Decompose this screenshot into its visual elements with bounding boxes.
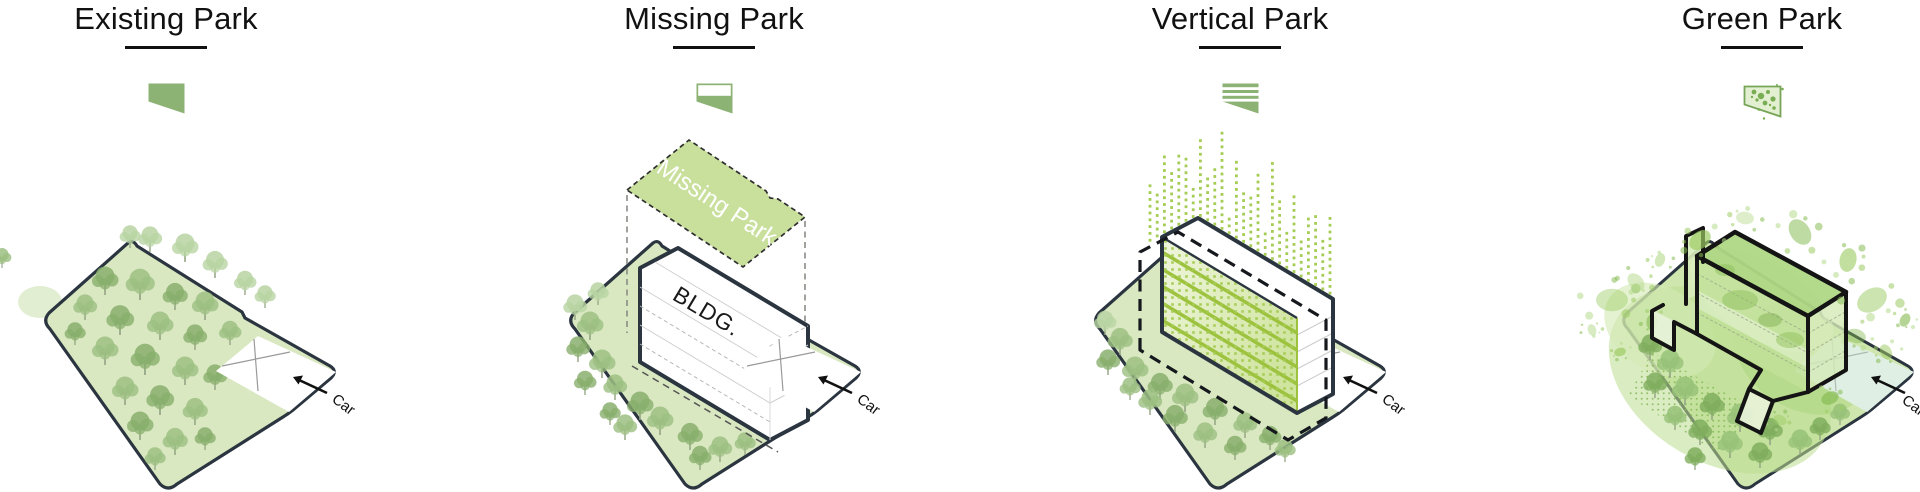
green-dot [1293, 223, 1296, 226]
green-dot [1321, 247, 1324, 250]
green-dot [1149, 212, 1152, 215]
green-dot [1329, 251, 1332, 254]
car-label: Car [854, 391, 884, 419]
splatter-dot [1736, 210, 1739, 213]
green-dot [1307, 231, 1310, 234]
splatter-dot [1860, 345, 1866, 351]
green-dot [1285, 245, 1288, 248]
tree [255, 285, 276, 308]
green-dot [1199, 153, 1202, 156]
green-dot [1163, 190, 1166, 193]
green-dot [1192, 208, 1195, 211]
green-dot [1163, 217, 1166, 220]
green-dot [1271, 196, 1274, 199]
green-dot [1149, 191, 1152, 194]
green-dot [1307, 279, 1310, 282]
green-dot [1257, 221, 1260, 224]
splatter-blob [1735, 211, 1755, 226]
splatter-dot [1645, 309, 1649, 313]
green-dot [1213, 209, 1216, 212]
green-dot [1314, 283, 1317, 286]
green-dot [1199, 139, 1202, 142]
splatter-dot [1783, 410, 1787, 414]
green-dot [1206, 218, 1209, 221]
splatter-dot [1896, 323, 1900, 327]
green-dot [1206, 178, 1209, 181]
splatter-dot [1639, 322, 1643, 326]
green-dot [1221, 193, 1224, 196]
splatter-dot [1803, 216, 1807, 220]
green-dot [1221, 207, 1224, 210]
green-dot [1293, 270, 1296, 273]
green-dot [1221, 152, 1224, 155]
green-dot [1257, 242, 1260, 245]
green-dot [1242, 226, 1245, 229]
green-dot [1177, 162, 1180, 165]
green-dot [1206, 205, 1209, 208]
green-dot [1221, 220, 1224, 223]
green-dot [1213, 223, 1216, 226]
green-dot [1249, 231, 1252, 234]
green-dot [1264, 233, 1267, 236]
green-dot [1300, 275, 1303, 278]
green-dot [1149, 184, 1152, 187]
splatter-dot [1649, 285, 1655, 291]
green-dot [1199, 194, 1202, 197]
green-dot [1249, 237, 1252, 240]
green-dot [1321, 267, 1324, 270]
green-dot [1163, 203, 1166, 206]
green-dot [1163, 224, 1166, 227]
splatter-dot [1625, 357, 1627, 359]
green-dot [1156, 228, 1159, 231]
green-dot [1163, 169, 1166, 172]
green-dot [1271, 244, 1274, 247]
green-dot [1163, 176, 1166, 179]
splatter-dot [1886, 308, 1891, 313]
splatter-dot [1875, 354, 1878, 357]
splatter-dot [1760, 217, 1765, 222]
green-dot [1199, 214, 1202, 217]
green-dot [1199, 160, 1202, 163]
green-dot [1271, 176, 1274, 179]
splatter-dot [1752, 228, 1756, 232]
green-dot [1163, 183, 1166, 186]
green-dot [1185, 158, 1188, 161]
splatter-dot [1862, 255, 1866, 259]
green-dot [1177, 168, 1180, 171]
green-dot [1156, 194, 1159, 197]
green-dot [1264, 246, 1267, 249]
green-dot [1257, 187, 1260, 190]
green-dot [1170, 193, 1173, 196]
green-dot [1213, 182, 1216, 185]
green-dot [1329, 258, 1332, 261]
green-dot [1300, 247, 1303, 250]
green-dot [1221, 227, 1224, 230]
concept-diagram-sheet: Existing Park Missing Park Vertical Park… [0, 0, 1920, 492]
green-dot [1199, 207, 1202, 210]
green-dot [1293, 216, 1296, 219]
splatter-dot [1579, 331, 1582, 334]
green-dot [1199, 187, 1202, 190]
green-dot [1177, 189, 1180, 192]
tree [172, 234, 199, 263]
green-dot [1177, 182, 1180, 185]
green-dot [1293, 257, 1296, 260]
splatter-dot [1888, 283, 1894, 289]
green-dot [1149, 205, 1152, 208]
splatter-dot [1598, 332, 1600, 334]
green-dot [1249, 224, 1252, 227]
green-dot [1221, 179, 1224, 182]
green-dot [1329, 217, 1332, 220]
green-dot [1242, 240, 1245, 243]
green-dot [1278, 207, 1281, 210]
green-dot [1271, 169, 1274, 172]
green-dot [1314, 215, 1317, 218]
car-label: Car [1379, 391, 1409, 419]
green-dot [1271, 230, 1274, 233]
splatter-dot [1788, 421, 1792, 425]
green-dot [1185, 185, 1188, 188]
green-dot [1192, 215, 1195, 218]
car-label: Car [329, 391, 359, 419]
green-dot [1329, 244, 1332, 247]
green-dot [1221, 132, 1224, 135]
green-dot [1321, 253, 1324, 256]
splatter-dot [1815, 223, 1823, 231]
green-dot [1271, 189, 1274, 192]
splatter-dot [1852, 344, 1855, 347]
existing-park-diagram: Car [0, 225, 358, 488]
green-dot [1300, 268, 1303, 271]
green-dot [1163, 230, 1166, 233]
green-dot [1314, 222, 1317, 225]
splatter-dot [1858, 244, 1865, 251]
green-dot [1278, 221, 1281, 224]
splatter-dot [1904, 308, 1907, 311]
tree [613, 414, 637, 440]
green-dot [1321, 281, 1324, 284]
green-dot [1170, 199, 1173, 202]
green-dot [1192, 188, 1195, 191]
green-dot [1163, 210, 1166, 213]
splatter-dot [1876, 358, 1881, 363]
green-dot [1177, 209, 1180, 212]
splatter-dot [1745, 206, 1750, 211]
splatter-dot [1646, 258, 1650, 262]
vertical-park-diagram: Car [1094, 132, 1408, 488]
green-dot [1206, 198, 1209, 201]
green-dot [1235, 202, 1238, 205]
green-dot [1177, 202, 1180, 205]
green-dot [1329, 278, 1332, 281]
green-dot [1314, 276, 1317, 279]
green-dot [1156, 207, 1159, 210]
car-label: Car [1899, 392, 1920, 420]
green-dot [1271, 223, 1274, 226]
green-dot [1221, 145, 1224, 148]
splatter-dot [1672, 257, 1676, 261]
green-dot [1300, 261, 1303, 264]
green-dot [1228, 231, 1231, 234]
green-dot [1235, 236, 1238, 239]
green-dot [1278, 228, 1281, 231]
splatter-dot [1895, 298, 1905, 308]
green-dot [1242, 199, 1245, 202]
green-dot [1185, 199, 1188, 202]
green-dot [1249, 197, 1252, 200]
green-dot [1213, 175, 1216, 178]
green-dot [1235, 181, 1238, 184]
green-dot [1271, 210, 1274, 213]
splatter-blob [1837, 247, 1858, 274]
green-dot [1149, 218, 1152, 221]
green-dot [1177, 155, 1180, 158]
splatter-dot [1646, 328, 1649, 331]
green-dot [1271, 203, 1274, 206]
green-dot [1199, 180, 1202, 183]
green-dot [1235, 195, 1238, 198]
green-dot [1307, 218, 1310, 221]
splatter-blob [1784, 215, 1816, 249]
splatter-dot [1839, 405, 1844, 410]
green-dot [1177, 175, 1180, 178]
green-dot [1199, 200, 1202, 203]
green-dot [1213, 216, 1216, 219]
green-dot [1213, 168, 1216, 171]
green-dot [1199, 166, 1202, 169]
green-dot [1257, 201, 1260, 204]
green-dot [1163, 156, 1166, 159]
splatter-dot [1838, 390, 1843, 395]
green-dot [1185, 165, 1188, 168]
green-dot [1185, 219, 1188, 222]
green-dot [1213, 195, 1216, 198]
splatter-dot [1610, 349, 1613, 352]
green-dot [1314, 270, 1317, 273]
green-dot [1163, 196, 1166, 199]
splatter-blob [1596, 289, 1628, 311]
green-dot [1314, 236, 1317, 239]
splatter-dot [1731, 223, 1734, 226]
green-dot [1163, 162, 1166, 165]
green-dot [1271, 216, 1274, 219]
green-dot [1185, 171, 1188, 174]
splatter-dot [1699, 253, 1703, 257]
green-dot [1235, 229, 1238, 232]
green-dot [1177, 196, 1180, 199]
green-dot [1185, 178, 1188, 181]
green-dot [1257, 249, 1260, 252]
green-dot [1300, 241, 1303, 244]
splatter-dot [1722, 238, 1727, 243]
splatter-dot [1808, 247, 1815, 254]
green-dot [1249, 244, 1252, 247]
green-dot [1242, 233, 1245, 236]
green-dot [1156, 200, 1159, 203]
green-dot [1221, 200, 1224, 203]
tree [574, 371, 597, 395]
green-dot [1170, 227, 1173, 230]
green-dot [1235, 188, 1238, 191]
splatter-dot [1629, 346, 1631, 348]
green-dot [1293, 209, 1296, 212]
green-dot [1221, 213, 1224, 216]
green-dot [1149, 239, 1152, 242]
green-dot [1307, 238, 1310, 241]
green-dot [1149, 225, 1152, 228]
splatter-dot [1829, 387, 1832, 390]
green-dot [1192, 202, 1195, 205]
green-dot [1228, 218, 1231, 221]
splatter-dot [1577, 292, 1584, 299]
green-dot [1170, 179, 1173, 182]
green-dot [1221, 166, 1224, 169]
missing-park-diagram: BLDG. Missing Park Car [563, 140, 883, 488]
green-dot [1257, 181, 1260, 184]
splatter-dot [1833, 272, 1839, 278]
green-dot [1221, 159, 1224, 162]
green-dot [1278, 200, 1281, 203]
green-dot [1235, 215, 1238, 218]
splatter-dot [1657, 251, 1661, 255]
green-dot [1156, 214, 1159, 217]
splatter-dot [1789, 210, 1797, 218]
green-dot [1264, 253, 1267, 256]
splatter-dot [1669, 266, 1672, 269]
green-dot [1249, 217, 1252, 220]
splatter-dot [1682, 240, 1686, 244]
splatter-dot [1915, 318, 1918, 321]
splatter-dot [1620, 342, 1623, 345]
splatter-dot [1585, 312, 1593, 320]
green-dot [1235, 161, 1238, 164]
splatter-dot [1727, 212, 1732, 217]
green-dot [1264, 239, 1267, 242]
green-dot [1271, 182, 1274, 185]
splatter-dot [1775, 428, 1779, 432]
green-dot [1257, 235, 1260, 238]
green-dot [1242, 213, 1245, 216]
green-dot [1293, 202, 1296, 205]
green-dot [1314, 242, 1317, 245]
splatter-dot [1785, 248, 1791, 254]
green-dot [1192, 195, 1195, 198]
green-park-diagram: Car [1575, 206, 1920, 492]
splatter-dot [1866, 313, 1875, 322]
green-dot [1235, 208, 1238, 211]
green-dot [1257, 174, 1260, 177]
splatter-dot [1622, 309, 1631, 318]
green-dot [1156, 234, 1159, 237]
splatter-dot [1649, 274, 1653, 278]
green-dot [1285, 252, 1288, 255]
green-dot [1293, 229, 1296, 232]
green-dot [1185, 205, 1188, 208]
green-dot [1307, 245, 1310, 248]
splatter-dot [1905, 326, 1907, 328]
green-dot [1149, 198, 1152, 201]
splatter-dot [1660, 310, 1663, 313]
green-dot [1329, 271, 1332, 274]
green-dot [1271, 250, 1274, 253]
splatter-dot [1626, 266, 1630, 270]
splatter-dot [1776, 223, 1781, 228]
green-dot [1329, 292, 1332, 295]
green-dot [1242, 192, 1245, 195]
splatter-dot [1773, 411, 1776, 414]
green-dot [1185, 212, 1188, 215]
green-dot [1329, 265, 1332, 268]
splatter-dot [1825, 410, 1829, 414]
splatter-blob [1586, 323, 1598, 337]
green-dot [1228, 225, 1231, 228]
green-dot [1206, 184, 1209, 187]
splatter-dot [1848, 278, 1855, 285]
green-dot [1257, 228, 1260, 231]
splatter-dot [1813, 395, 1816, 398]
green-dot [1285, 259, 1288, 262]
green-dot [1314, 229, 1317, 232]
green-dot [1257, 194, 1260, 197]
green-dot [1177, 223, 1180, 226]
splatter-dot [1860, 320, 1864, 324]
site-diagrams: Car [0, 0, 1920, 492]
green-dot [1293, 250, 1296, 253]
green-dot [1170, 172, 1173, 175]
splatter-dot [1889, 360, 1892, 363]
green-dot [1271, 257, 1274, 260]
green-dot [1170, 220, 1173, 223]
splatter-dot [1631, 297, 1636, 302]
tree [0, 248, 11, 268]
green-dot [1329, 231, 1332, 234]
green-dot [1329, 224, 1332, 227]
splatter-dot [1900, 347, 1903, 350]
green-dot [1285, 266, 1288, 269]
green-dot [1300, 254, 1303, 257]
green-dot [1314, 263, 1317, 266]
splatter-dot [1819, 385, 1824, 390]
splatter-dot [1911, 325, 1915, 329]
green-dot [1329, 237, 1332, 240]
green-dot [1321, 240, 1324, 243]
splatter-dot [1651, 255, 1653, 257]
splatter-dot [1628, 289, 1633, 294]
green-dot [1213, 189, 1216, 192]
splatter-dot [1890, 339, 1894, 343]
green-dot [1257, 215, 1260, 218]
green-dot [1278, 214, 1281, 217]
green-dot [1206, 191, 1209, 194]
green-dot [1307, 265, 1310, 268]
green-dot [1249, 210, 1252, 213]
green-dot [1170, 186, 1173, 189]
green-dot [1293, 195, 1296, 198]
green-dot [1271, 237, 1274, 240]
green-dot [1206, 212, 1209, 215]
green-dot [1170, 206, 1173, 209]
green-dot [1185, 192, 1188, 195]
green-dot [1278, 255, 1281, 258]
splatter-dot [1842, 243, 1846, 247]
splatter-dot [1821, 259, 1826, 264]
splatter-dot [1837, 297, 1845, 305]
splatter-dot [1684, 228, 1691, 235]
splatter-dot [1592, 335, 1595, 338]
